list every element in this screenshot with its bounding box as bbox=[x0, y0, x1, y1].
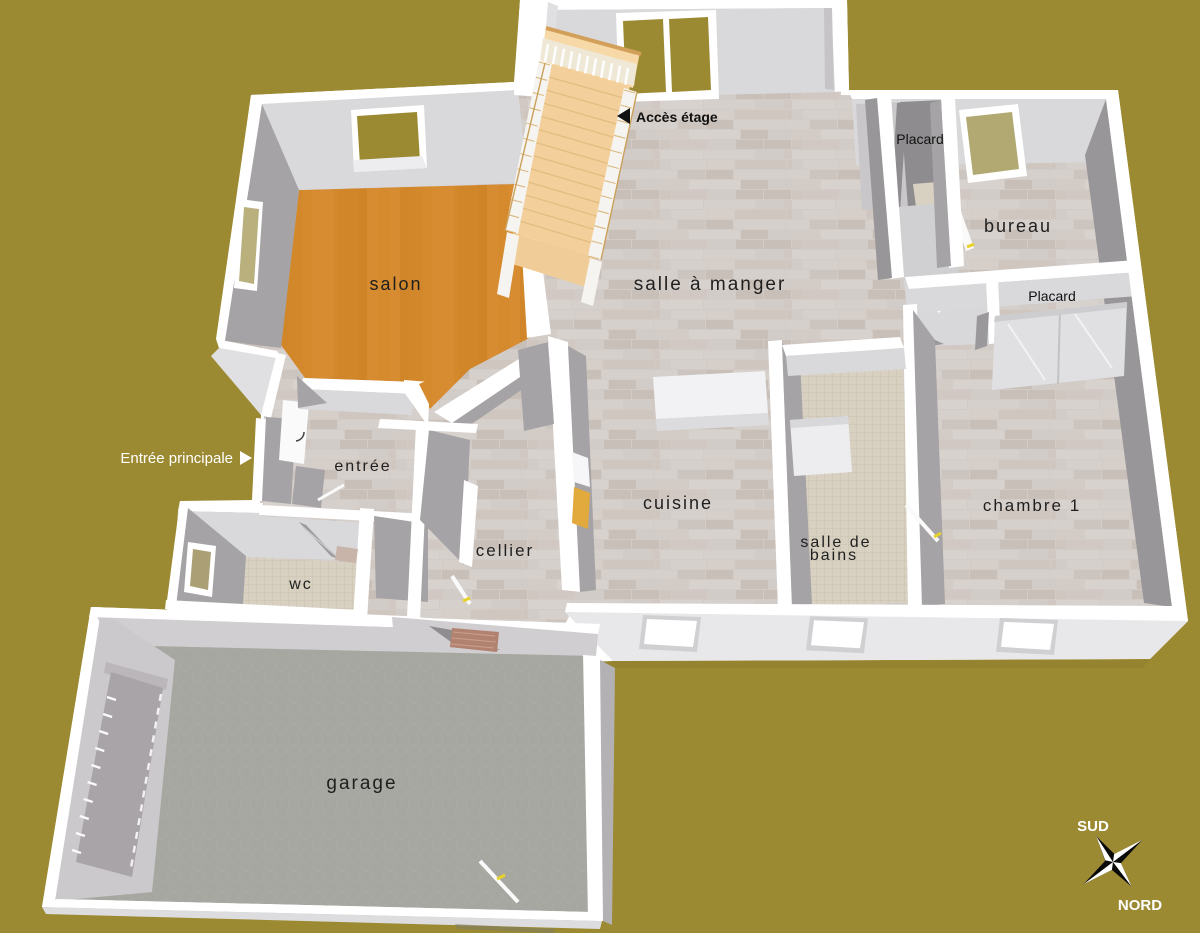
svg-text:Accès étage: Accès étage bbox=[636, 109, 718, 125]
svg-text:entrée: entrée bbox=[334, 458, 391, 475]
svg-text:garage: garage bbox=[326, 773, 397, 794]
svg-text:bains: bains bbox=[810, 547, 858, 564]
svg-text:salon: salon bbox=[369, 274, 422, 294]
svg-text:bureau: bureau bbox=[984, 216, 1052, 236]
svg-text:chambre 1: chambre 1 bbox=[983, 496, 1081, 515]
svg-text:SUD: SUD bbox=[1077, 818, 1109, 835]
svg-text:Placard: Placard bbox=[1028, 288, 1075, 304]
svg-text:NORD: NORD bbox=[1118, 897, 1162, 914]
svg-text:cellier: cellier bbox=[476, 541, 534, 560]
svg-text:Placard: Placard bbox=[896, 131, 943, 147]
svg-text:Entrée principale: Entrée principale bbox=[120, 450, 233, 467]
svg-text:salle à manger: salle à manger bbox=[634, 274, 787, 295]
svg-text:cuisine: cuisine bbox=[643, 493, 713, 513]
svg-text:wc: wc bbox=[288, 576, 313, 593]
